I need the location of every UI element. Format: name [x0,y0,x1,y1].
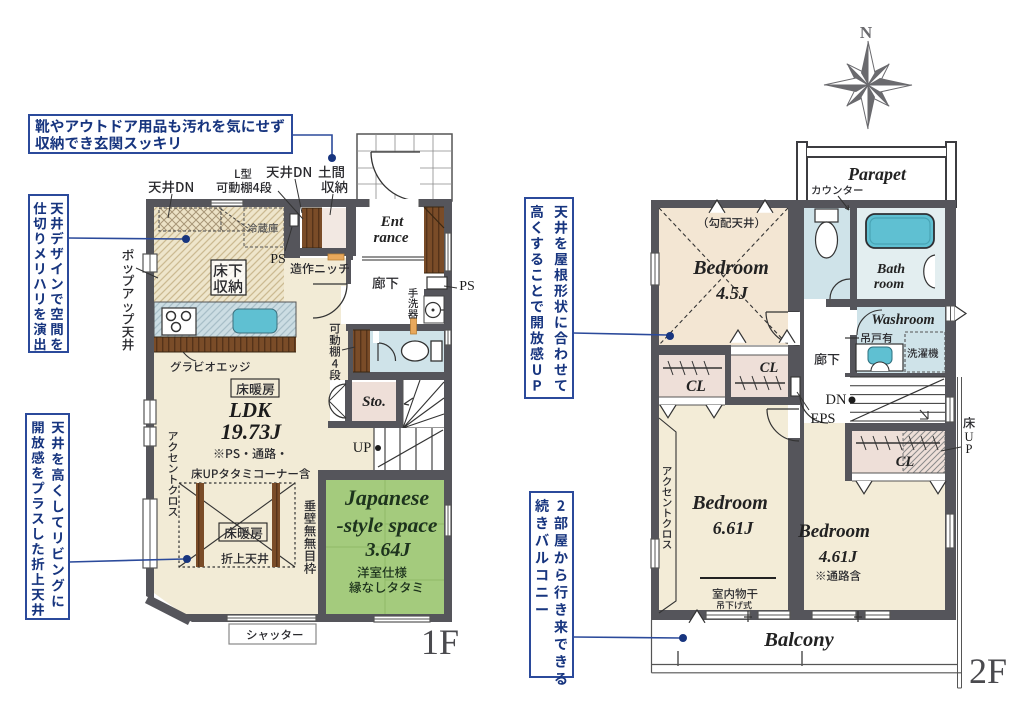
svg-text:1F: 1F [421,622,459,662]
svg-text:Bedroom: Bedroom [691,492,768,514]
svg-text:room: room [874,277,904,292]
svg-text:Washroom: Washroom [871,312,934,328]
svg-text:UP: UP [353,440,372,456]
svg-text:DN: DN [826,392,847,408]
svg-text:6.61J: 6.61J [713,518,755,538]
svg-text:4.5J: 4.5J [715,283,749,303]
svg-text:PS: PS [459,279,475,294]
svg-text:EPS: EPS [811,411,836,427]
svg-text:Balcony: Balcony [763,629,834,651]
svg-text:Bedroom: Bedroom [797,521,870,542]
svg-text:CL: CL [760,360,779,376]
svg-text:N: N [860,23,873,42]
svg-text:2F: 2F [969,651,1007,691]
svg-text:P: P [966,442,973,456]
svg-text:Bath: Bath [876,262,905,277]
svg-text:Parapet: Parapet [847,164,907,184]
svg-text:3.64J: 3.64J [365,539,412,561]
svg-text:Sto.: Sto. [362,394,386,410]
svg-text:CL: CL [896,454,915,470]
svg-text:4.61J: 4.61J [818,547,858,566]
svg-text:Japanese: Japanese [344,485,430,510]
svg-text:-style space: -style space [337,513,438,537]
svg-text:CL: CL [686,378,706,395]
svg-text:19.73J: 19.73J [221,419,283,444]
svg-text:Ent: Ent [380,214,404,230]
svg-text:rance: rance [374,230,409,246]
svg-text:Bedroom: Bedroom [692,257,769,279]
svg-text:PS: PS [270,252,286,267]
